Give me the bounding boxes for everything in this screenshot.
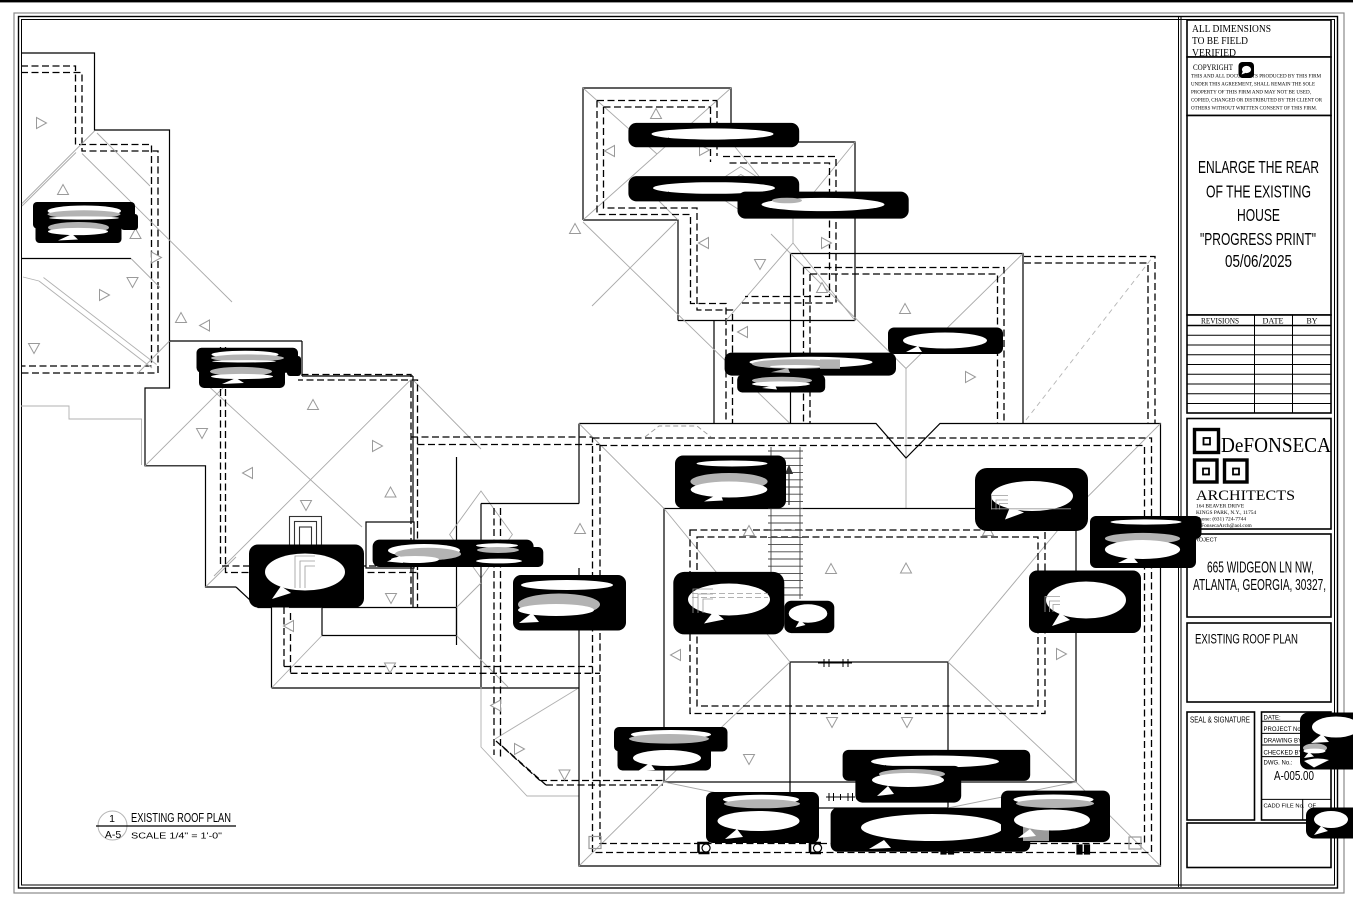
svg-text:DWG. No.:: DWG. No.: — [1264, 761, 1293, 767]
svg-text:PROPERTY OF THIS FIRM AND MAY: PROPERTY OF THIS FIRM AND MAY NOT BE USE… — [1191, 90, 1312, 96]
svg-text:HOUSE: HOUSE — [1237, 205, 1280, 225]
svg-text:"PROGRESS PRINT": "PROGRESS PRINT" — [1200, 229, 1316, 249]
svg-text:SCALE 1/4" = 1'-0": SCALE 1/4" = 1'-0" — [131, 832, 222, 841]
svg-text:A-005.00: A-005.00 — [1274, 769, 1314, 783]
svg-text:ARCHITECTS: ARCHITECTS — [1196, 488, 1295, 504]
svg-text:ALL DIMENSIONS: ALL DIMENSIONS — [1192, 24, 1271, 35]
svg-text:05/06/2025: 05/06/2025 — [1225, 251, 1292, 271]
svg-text:CADD FILE No.: CADD FILE No. — [1264, 804, 1305, 810]
svg-text:OTHERS WITHOUT WRITTEN CONSENT: OTHERS WITHOUT WRITTEN CONSENT OF THIS F… — [1191, 106, 1318, 112]
svg-text:UNDER THIS AGREEMENT, SHALL RE: UNDER THIS AGREEMENT, SHALL REMAIN THE S… — [1191, 82, 1316, 88]
svg-text:ENLARGE THE REAR: ENLARGE THE REAR — [1198, 157, 1319, 177]
svg-text:PROJECT No.:: PROJECT No.: — [1264, 727, 1305, 733]
svg-text:KINGS PARK, N.Y., 11754: KINGS PARK, N.Y., 11754 — [1196, 510, 1256, 516]
svg-text:665 WIDGEON LN NW,: 665 WIDGEON LN NW, — [1207, 560, 1314, 577]
svg-text:COPYRIGHT: COPYRIGHT — [1193, 63, 1233, 72]
svg-text:DRAWING BY:: DRAWING BY: — [1264, 739, 1304, 745]
svg-text:DeFONSECA: DeFONSECA — [1221, 433, 1331, 457]
svg-text:EXISTING ROOF PLAN: EXISTING ROOF PLAN — [1195, 632, 1298, 647]
svg-text:SEAL & SIGNATURE: SEAL & SIGNATURE — [1190, 715, 1250, 725]
svg-text:CHECKED BY:: CHECKED BY: — [1264, 750, 1305, 756]
svg-text:COPIED, CHANGED OR DISTRIBUTED: COPIED, CHANGED OR DISTRIBUTED BY TEH CL… — [1191, 98, 1322, 104]
svg-text:EXISTING ROOF PLAN: EXISTING ROOF PLAN — [131, 811, 231, 825]
svg-text:BY: BY — [1307, 317, 1318, 326]
svg-text:Phone: (631) 724-7744: Phone: (631) 724-7744 — [1196, 516, 1246, 523]
svg-text:A-5: A-5 — [105, 829, 122, 841]
svg-text:OF THE EXISTING: OF THE EXISTING — [1206, 181, 1311, 201]
svg-text:ATLANTA, GEORGIA, 30327,: ATLANTA, GEORGIA, 30327, — [1193, 577, 1326, 594]
svg-text:REVISIONS: REVISIONS — [1201, 317, 1239, 326]
svg-text:DATE:: DATE: — [1264, 715, 1282, 721]
svg-text:deFonsecaArch@aol.com: deFonsecaArch@aol.com — [1196, 523, 1253, 529]
svg-text:1: 1 — [109, 813, 115, 825]
svg-text:164 BEAVER DRIVE: 164 BEAVER DRIVE — [1196, 504, 1245, 510]
svg-text:THIS AND ALL DOCUMENTS PRODUC: THIS AND ALL DOCUMENTS PRODUCED BY THIS … — [1191, 74, 1321, 80]
svg-text:TO BE FIELD: TO BE FIELD — [1192, 36, 1248, 47]
svg-text:DATE: DATE — [1263, 317, 1284, 326]
